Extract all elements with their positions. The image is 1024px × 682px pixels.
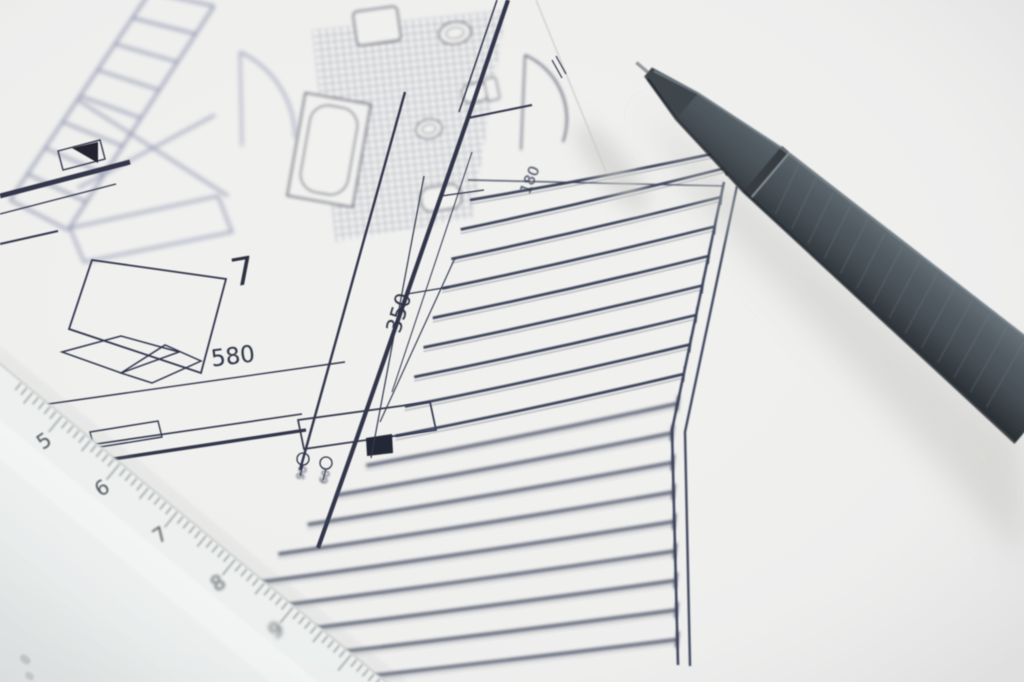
vignette-overlay <box>0 0 1024 682</box>
floor-plan-photo <box>0 0 1024 682</box>
photo-scene: 7 580 350 180 90 60 5 6 7 8 9 <box>0 0 1024 682</box>
